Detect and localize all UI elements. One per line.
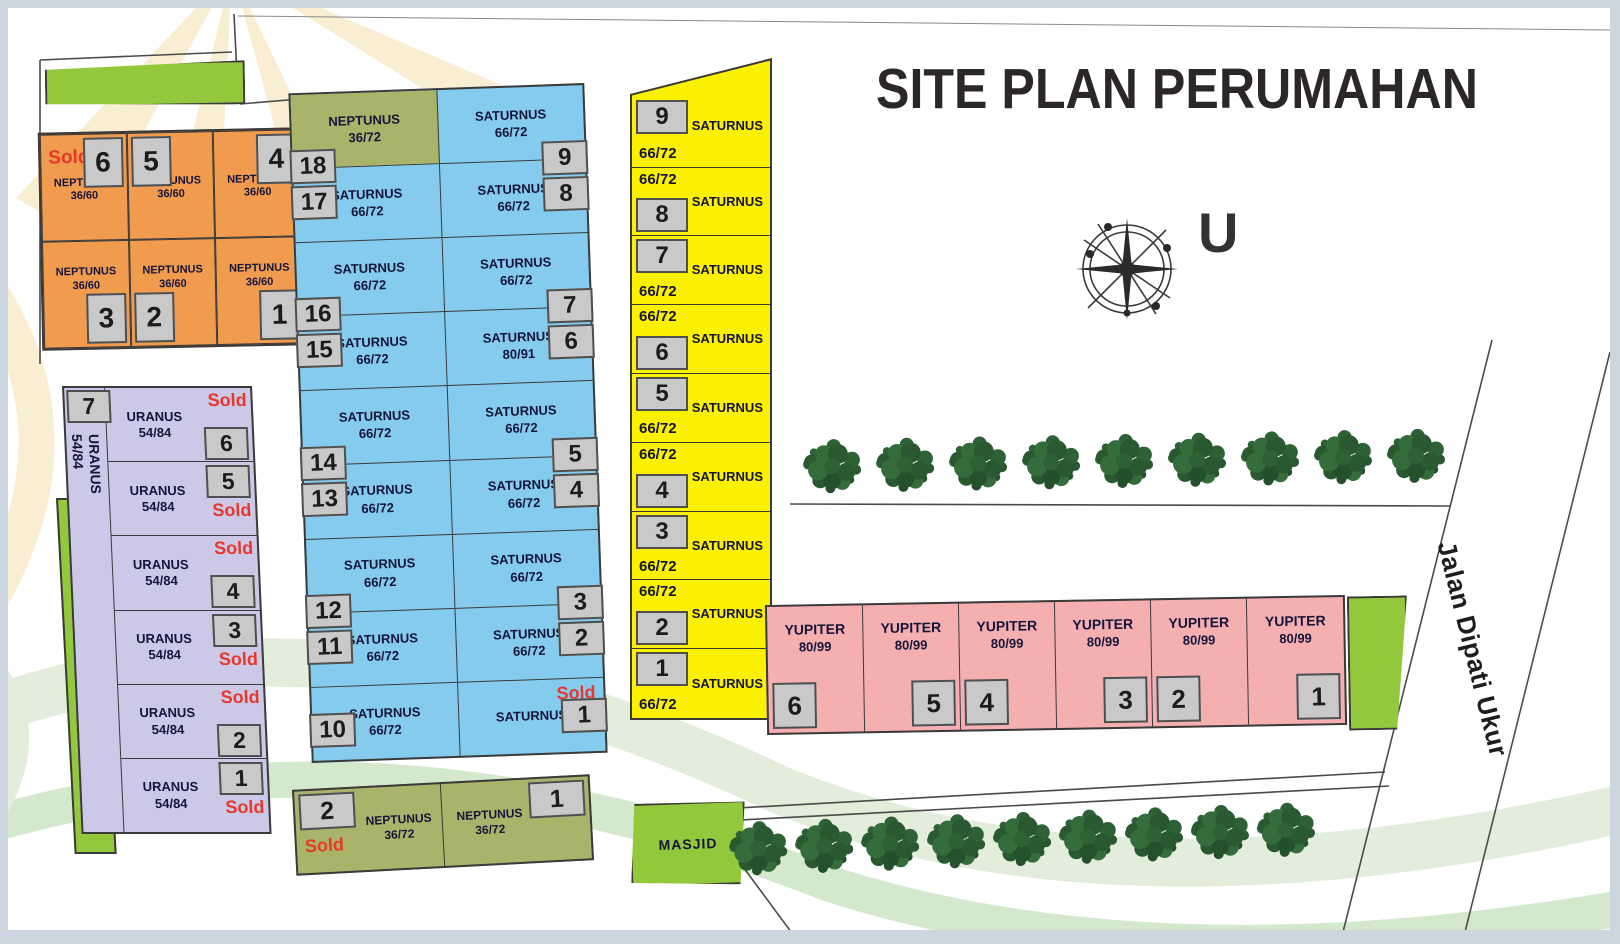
slot-top: 5 [189,465,250,498]
plot-number-tag: 5 [636,377,688,411]
plot-type: YUPITER [767,620,862,639]
plot-size: 66/72 [508,494,541,511]
plot-size: 66/72 [639,308,677,327]
tree-icon [882,835,899,852]
plot-cell: URANUS 54/84 Sold 6 [105,388,253,462]
plot-size: 66/72 [639,171,677,190]
plot-type: SATURNUS [490,551,562,570]
plot-type: SATURNUS [692,606,763,622]
plot-size: 66/72 [639,558,677,577]
plot-number-tag: 5 [131,136,172,187]
tree-icon [948,833,965,850]
plot-size: 36/72 [348,129,381,146]
plot-cell: 7 SATURNUS 66/72 [632,236,770,305]
plot-type: NEPTUNUS [46,265,127,280]
sold-label: Sold [207,391,247,409]
plot-type: SATURNUS [692,118,763,134]
tree-slot [989,795,1056,883]
plot-type: NEPTUNUS [328,111,400,130]
plot-number-tag: 14 [300,445,347,481]
plot-number-tag: 6 [548,324,595,360]
tree-slot [945,420,1010,507]
tree-icon [1408,448,1424,464]
plot-type: YUPITER [959,617,1054,636]
plot-number-tag: 3 [636,515,688,549]
tree-slot [1186,788,1253,876]
tree-icon [897,457,913,473]
slot-bottom: 2 [201,724,262,757]
plot-type: SATURNUS [331,185,403,204]
plot-size: 66/72 [639,696,677,715]
plot-type: YUPITER [1151,614,1246,633]
plot-size: 36/60 [46,279,127,294]
plot-label: YUPITER 80/99 [1247,612,1344,647]
plot-size: 54/84 [68,434,87,494]
plot-number-tag: 9 [541,140,588,176]
uranus-units: URANUS 54/84 Sold 6 URANUS [105,388,269,832]
plot-cell: 3 NEPTUNUS 36/60 [42,240,131,349]
plot-label: YUPITER 80/99 [767,620,863,655]
plot-type: YUPITER [863,619,958,638]
compass-rose-icon [1068,210,1186,333]
plot-number-tag: 1 [218,762,263,795]
tree-icon [1189,452,1205,468]
block-yupiter: YUPITER 80/99 6 YUPITER 80/99 5 YUPITER … [765,595,1347,735]
plot-size: 66/72 [513,643,546,660]
plot-type: SATURNUS [477,180,549,199]
sold-label: Sold [212,501,252,519]
north-label: U [1198,200,1238,265]
plot-type: SATURNUS [692,193,763,209]
plot-number-tag: 4 [964,679,1009,726]
plot-label: URANUS 54/84 [68,434,104,494]
plot-size: 66/72 [505,420,538,437]
plot-size: 66/72 [639,283,677,302]
plot-type: URANUS [108,408,201,424]
plot-number-tag: 1 [259,289,300,340]
tree-slot [1252,786,1319,874]
plot-row: SATURNUS 66/72 SATURNUS 66/72 12 11 3 2 [309,604,603,688]
plot-size: 80/99 [863,636,958,654]
plot-cell: URANUS 54/84 1 Sold [121,759,269,832]
plot-cell: 1 SATURNUS 66/72 [632,649,770,718]
plot-size: 66/72 [351,203,384,220]
plot-type: NEPTUNUS [132,263,213,278]
plot-type: SATURNUS [475,106,547,125]
plot-type: SATURNUS [692,676,763,692]
plot-number-tag: 5 [205,465,250,498]
plot-number-tag: 10 [309,712,356,748]
plot-number-tag: 4 [210,575,255,608]
plot-type: SATURNUS [692,331,763,347]
plot-cell: URANUS 54/84 Sold 4 [112,536,260,610]
plot-size: 66/72 [510,568,543,585]
plot-label: YUPITER 80/99 [863,619,959,654]
plot-type: SATURNUS [496,707,568,726]
plot-type: SATURNUS [485,402,557,421]
plot-size: 66/72 [353,277,386,294]
plot-number-tag: 16 [295,297,342,333]
plot-size: 36/60 [217,186,298,201]
plot-size: 66/72 [639,446,677,465]
plot-size: 80/99 [1055,633,1150,651]
tree-icon [1212,824,1229,841]
tree-slot [791,802,858,890]
plot-number-tag: 2 [558,620,605,656]
slot-bottom: Sold [204,798,265,816]
plot-label: NEPTUNUS 36/72 [448,805,531,839]
tree-slot [923,797,990,885]
tree-icon [1262,450,1278,466]
plot-type: NEPTUNUS [219,261,300,276]
plot-type: SATURNUS [333,259,405,278]
plot-type: SATURNUS [346,630,418,649]
plot-type: SATURNUS [692,262,763,278]
plot-number-tag: 6 [636,336,688,370]
plot-label: NEPTUNUS 36/60 [132,263,213,292]
block-neptunus-36-60: Sold 6 NEPTUNUS 36/60 5 NEPTUNUS 36/60 4 [38,127,307,350]
plot-number-tag: 5 [911,680,956,727]
tree-slot [1310,414,1375,501]
tree-row-top [799,412,1448,509]
plot-size: 36/60 [131,187,212,202]
block-uranus-54-84: 7 URANUS 54/84 URANUS 54/84 Sold [62,386,272,834]
sold-label: Sold [225,798,265,816]
plot-size: 66/72 [361,500,394,517]
tree-slot [799,423,864,510]
plot-cell: 8 SATURNUS 66/72 [632,168,770,237]
plot-cell: URANUS 54/84 Sold 2 [118,685,266,759]
plot-cell: 4 SATURNUS 66/72 [632,443,770,512]
plot-number-tag: 17 [291,185,338,221]
sold-label: Sold [219,650,259,668]
plot-cell: YUPITER 80/99 3 [1055,600,1153,728]
sold-label: Sold [214,539,254,557]
page-title: SITE PLAN PERUMAHAN [876,56,1478,122]
tree-slot [857,800,924,888]
plot-label: NEPTUNUS 36/60 [219,261,300,290]
plot-size: 36/60 [44,189,125,204]
plot-size: 66/72 [364,574,397,591]
plot-size: 66/72 [639,145,677,164]
plot-cell: 4 NEPTUNUS 36/60 [213,129,302,238]
plot-number-tag: 4 [636,474,688,508]
plot-number-tag: 6 [83,137,124,188]
sold-label: Sold [304,835,344,855]
plot-number-tag: 6 [772,682,817,729]
plot-type: SATURNUS [692,537,763,553]
block-saturnus-yellow: 9 SATURNUS 66/72 8 SATURNUS 66/72 7 SATU… [630,58,772,720]
tree-icon [824,458,840,474]
tree-slot [1018,419,1083,506]
tree-icon [970,455,986,471]
tree-icon [1335,449,1351,465]
plot-type: URANUS [121,705,214,721]
sold-label: Sold [220,688,260,706]
plot-size: 66/72 [366,648,399,665]
plot-number-tag: 2 [298,792,356,831]
masjid-label: MASJID [658,835,717,853]
plot-number-tag: 2 [217,724,262,757]
plot-cell: YUPITER 80/99 2 [1151,599,1249,727]
plot-type: SATURNUS [493,625,565,644]
tree-slot [1120,790,1187,878]
plot-label: YUPITER 80/99 [959,617,1055,652]
tree-icon [750,840,767,857]
plot-size: 36/60 [132,277,213,292]
plot-size: 66/72 [639,420,677,439]
plot-type: SATURNUS [341,482,413,501]
plot-type: SATURNUS [480,254,552,273]
plot-number-tag: 3 [86,293,127,344]
slot-top: 3 [196,614,257,647]
plot-cell: YUPITER 80/99 1 [1247,597,1345,725]
plot-type: SATURNUS [692,469,763,485]
plot-cell: 1 NEPTUNUS 36/72 [441,776,592,866]
plot-number-tag: 7 [66,390,111,423]
plot-number-tag: 2 [636,611,688,645]
plot-cell: YUPITER 80/99 6 [767,605,865,733]
plot-number-tag: 9 [636,100,688,134]
plot-type: SATURNUS [482,328,554,347]
plot-number-tag: 7 [546,288,593,324]
slot-bottom: Sold [191,501,252,519]
block-saturnus-blue: NEPTUNUS 36/72 SATURNUS 66/72 SATURNUS [288,83,607,763]
plot-number-tag: 3 [557,584,604,620]
plot-cell: YUPITER 80/99 4 [959,602,1057,730]
plot-cell: 6 SATURNUS 66/72 [632,305,770,374]
slot-top: Sold [199,688,260,706]
plot-number-tag: 18 [289,149,336,185]
tree-slot [1091,417,1156,504]
slot-bottom: 6 [188,427,249,460]
plot-label: NEPTUNUS 36/72 [357,810,440,844]
plot-label: NEPTUNUS 36/60 [46,265,127,294]
plot-size: 66/72 [359,425,392,442]
plot-type: URANUS [114,557,207,573]
plot-type: SATURNUS [349,704,421,723]
plot-row: SATURNUS 66/72 SATURNUS 66/72 14 13 5 4 [303,455,597,539]
plot-number-tag: 11 [306,629,353,665]
tree-slot [725,804,792,892]
plot-number-tag: 13 [301,481,348,517]
plot-size: 80/99 [959,635,1054,653]
plot-row: SATURNUS 66/72 SATURNUS 80/91 16 15 7 6 [298,307,592,391]
plot-number-tag: 1 [528,780,586,819]
plot-type: SATURNUS [344,556,416,575]
plot-cell: 5 NEPTUNUS 36/60 [126,131,215,240]
plot-number-tag: 1 [1296,673,1341,720]
plot-size: 66/72 [497,198,530,215]
slot-top: Sold [193,539,254,557]
plot-number-tag: 3 [212,614,257,647]
plot-size: 66/72 [369,722,402,739]
plot-size: 80/99 [1247,629,1343,647]
plot-number-tag: 7 [636,239,688,273]
plot-type: URANUS [85,434,104,494]
plot-number-tag: 15 [296,333,343,369]
plot-cell: 2 NEPTUNUS 36/60 [129,238,218,347]
tree-icon [1146,826,1163,843]
slot-top: 1 [202,762,263,795]
plot-size: 66/72 [495,124,528,141]
plot-cell: URANUS 54/84 3 Sold [115,611,263,685]
plot-type: YUPITER [1055,615,1150,634]
tree-icon [1080,828,1097,845]
plot-cell: URANUS 54/84 5 Sold [108,462,256,536]
tree-slot [1164,416,1229,503]
plot-number-tag: 4 [553,472,600,508]
plot-cell: 1 NEPTUNUS 36/60 [215,236,304,345]
plot-size: 80/91 [502,346,535,363]
plot-row: SATURNUS 66/72 SATURNUS 66/72 18 17 9 8 [293,159,587,243]
plot-type: SATURNUS [692,400,763,416]
site-plan-canvas: SITE PLAN PERUMAHAN [0,0,1620,944]
plot-size: 80/99 [768,638,863,656]
plot-size: 36/60 [219,275,300,290]
plot-cell: 5 SATURNUS 66/72 [632,374,770,443]
plot-row: SATURNUS 66/72 Sold SATURNUS 10 1 [311,678,605,761]
plot-number-tag: 1 [561,698,608,734]
plot-number-tag: 8 [636,198,688,232]
tree-icon [1116,453,1132,469]
plot-cell: 2 SATURNUS 66/72 [632,580,770,649]
plot-number-tag: 3 [1103,676,1148,723]
tree-icon [816,838,833,855]
plot-type: SATURNUS [339,408,411,427]
slot-bottom: Sold [198,650,259,668]
plot-cell: 2 Sold NEPTUNUS 36/72 [294,784,445,874]
slot-top: Sold [186,391,247,409]
plot-number-tag: 12 [305,593,352,629]
plot-type: YUPITER [1247,612,1343,631]
plot-size: 66/72 [500,272,533,289]
plot-size: 80/99 [1151,631,1246,649]
plot-number-tag: 6 [204,427,249,460]
block-neptunus-36-72: 2 Sold NEPTUNUS 36/72 1 NEPTUNUS 36/72 [292,774,594,875]
plot-number-tag: 2 [134,292,175,343]
plot-label: YUPITER 80/99 [1055,615,1151,650]
plot-cell: Sold 6 NEPTUNUS 36/60 [40,133,129,242]
tree-slot [1054,793,1121,881]
plot-type: SATURNUS [488,477,560,496]
slot-bottom: 4 [194,575,255,608]
plot-cell: 3 SATURNUS 66/72 [632,512,770,581]
tree-icon [1014,831,1031,848]
plot-number-tag: 5 [552,436,599,472]
plot-number-tag: 8 [542,176,589,212]
plot-label: YUPITER 80/99 [1151,614,1247,649]
tree-slot [1237,415,1302,502]
tree-slot [872,421,937,508]
plot-size: 66/72 [639,583,677,602]
plot-size: 66/72 [356,351,389,368]
plot-number-tag: 2 [1156,675,1201,722]
plot-number-tag: 1 [636,652,688,686]
tree-icon [1043,454,1059,470]
tree-icon [1278,822,1295,839]
plot-cell: YUPITER 80/99 5 [863,604,961,732]
plot-type: SATURNUS [336,333,408,352]
